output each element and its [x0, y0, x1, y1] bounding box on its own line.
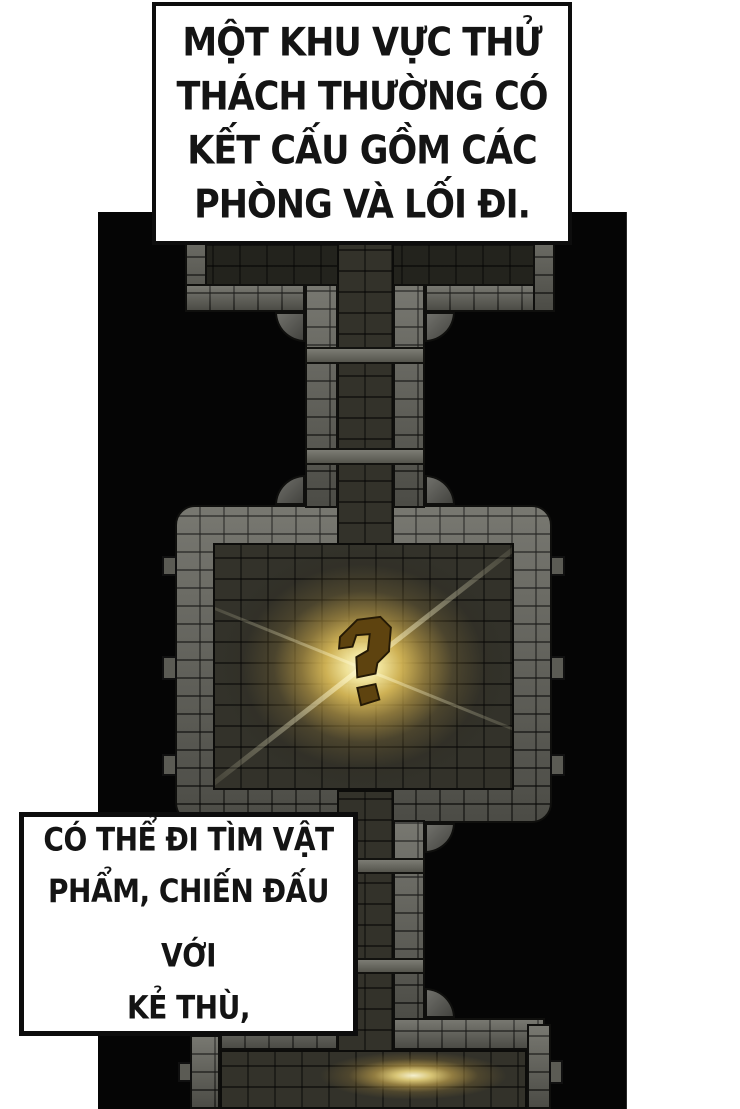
- question-mark-icon: [327, 614, 401, 710]
- pilaster: [162, 556, 177, 576]
- pilaster: [550, 656, 565, 680]
- narration-line: KẺ THÙ,: [24, 976, 353, 1040]
- pilaster: [162, 754, 177, 776]
- pilaster: [549, 1060, 563, 1084]
- corridor1-wall-left: [305, 284, 338, 508]
- comic-page: { "page": { "type": "manhwa-panel", "bac…: [0, 0, 740, 1109]
- corridor1-top-right-elbow: [425, 312, 455, 342]
- corridor2-top-right-elbow: [425, 823, 455, 853]
- pilaster: [550, 754, 565, 776]
- narration-line: MỘT KHU VỰC THỬ: [156, 12, 568, 72]
- corridor2-wall-right: [393, 820, 425, 1022]
- corridor1-passage-floor: [337, 212, 394, 545]
- pilaster: [178, 1062, 192, 1082]
- corridor1-bottom-right-elbow: [425, 475, 455, 505]
- pilaster: [162, 656, 177, 680]
- top-room-wall-bottom-left: [185, 284, 305, 312]
- corridor1-threshold-beam-upper: [305, 347, 425, 364]
- corridor1-wall-right: [393, 284, 425, 508]
- narration-box-bottom: CÓ THỂ ĐI TÌM VẬT PHẨM, CHIẾN ĐẤU VỚI KẺ…: [19, 812, 358, 1036]
- narration-line: PHÒNG VÀ LỐI ĐI.: [156, 174, 568, 234]
- narration-line: THÁCH THƯỜNG CÓ: [156, 66, 568, 126]
- corridor2-bottom-right-elbow: [425, 988, 455, 1018]
- narration-line: PHẨM, CHIẾN ĐẤU VỚI: [24, 860, 353, 989]
- corridor1-top-left-elbow: [275, 312, 305, 342]
- bottom-room-wall-right: [527, 1024, 551, 1109]
- narration-line: KẾT CẤU GỒM CÁC: [156, 120, 568, 180]
- bottom-room-floor: [220, 1050, 527, 1109]
- pilaster: [550, 556, 565, 576]
- bottom-room-wall-left: [190, 1035, 220, 1109]
- narration-box-top: MỘT KHU VỰC THỬ THÁCH THƯỜNG CÓ KẾT CẤU …: [152, 2, 572, 245]
- top-room-wall-bottom-right: [425, 284, 535, 312]
- corridor1-bottom-left-elbow: [275, 475, 305, 505]
- bottom-room-wall-top-right: [393, 1018, 545, 1050]
- corridor1-threshold-beam-lower: [305, 448, 425, 465]
